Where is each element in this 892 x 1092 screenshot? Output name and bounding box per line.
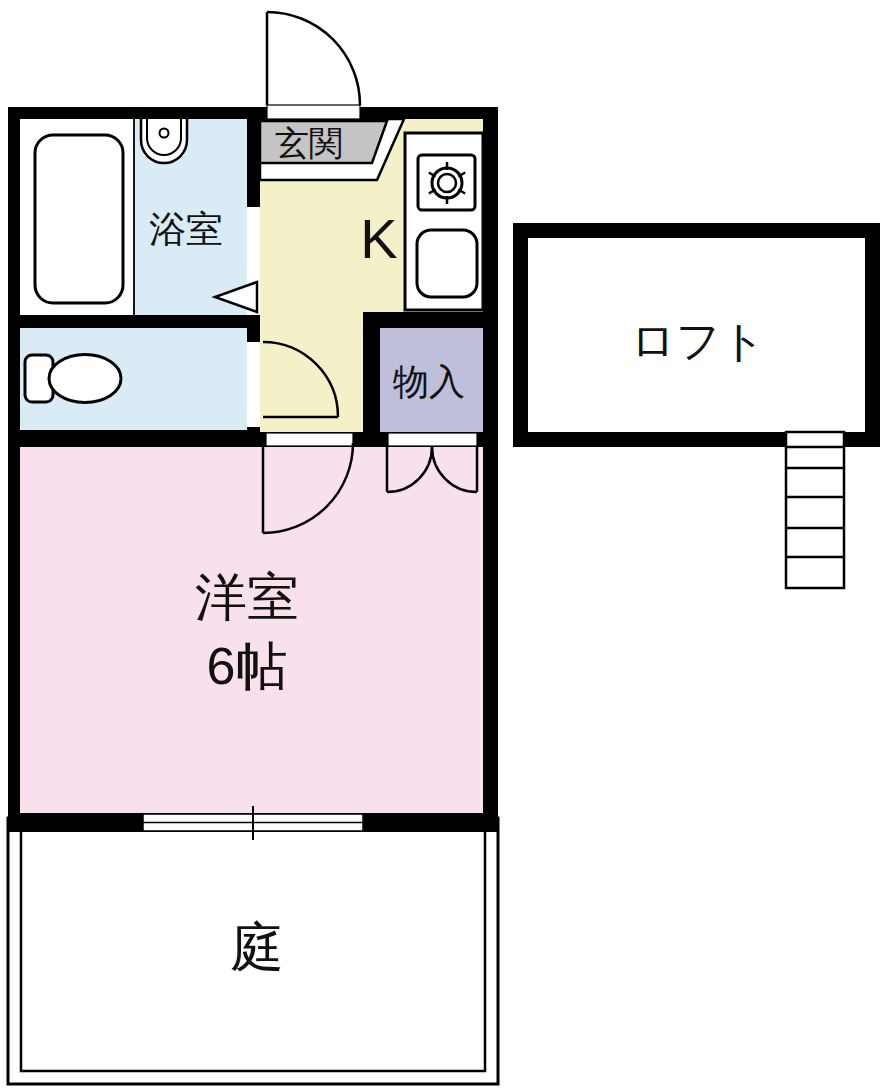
wall-right <box>483 107 498 832</box>
wall-left <box>8 107 20 832</box>
sink-icon <box>417 230 477 297</box>
washbasin-icon <box>141 119 187 163</box>
room-door-opening <box>266 433 353 446</box>
floorplan-drawing: 玄関 浴室 K 物入 ロフト 洋室 6帖 庭 <box>0 0 892 1092</box>
loft-ladder-icon <box>786 432 844 588</box>
entrance-door-swing <box>267 12 360 105</box>
wall-toilet-kitchen-upper <box>247 328 260 342</box>
genkan-label: 玄関 <box>275 124 343 162</box>
wall-above-storage <box>363 312 483 328</box>
wall-top-right <box>360 107 498 119</box>
wall-bath-entrance <box>247 119 260 207</box>
western-room-floor <box>20 447 483 813</box>
wall-top-left <box>8 107 267 119</box>
western-room-label: 洋室 <box>195 568 299 626</box>
storage-door-opening <box>388 433 477 446</box>
storage-label: 物入 <box>392 361 465 402</box>
kitchen-label: K <box>360 207 397 270</box>
entrance-door-opening <box>267 105 360 119</box>
bathroom-label: 浴室 <box>149 209 223 250</box>
toilet-door-opening <box>247 342 260 427</box>
kitchen-counter <box>405 133 483 310</box>
toilet-icon <box>25 355 121 403</box>
wall-bath-toilet <box>8 315 260 328</box>
loft-label: ロフト <box>630 316 765 365</box>
western-room-size-label: 6帖 <box>207 637 288 695</box>
wall-left-of-storage <box>363 312 380 447</box>
floorplan-canvas: 玄関 浴室 K 物入 ロフト 洋室 6帖 庭 <box>0 0 892 1092</box>
bathtub-icon <box>35 135 123 303</box>
garden-label: 庭 <box>230 917 284 977</box>
wall-below-toilet <box>8 430 260 447</box>
